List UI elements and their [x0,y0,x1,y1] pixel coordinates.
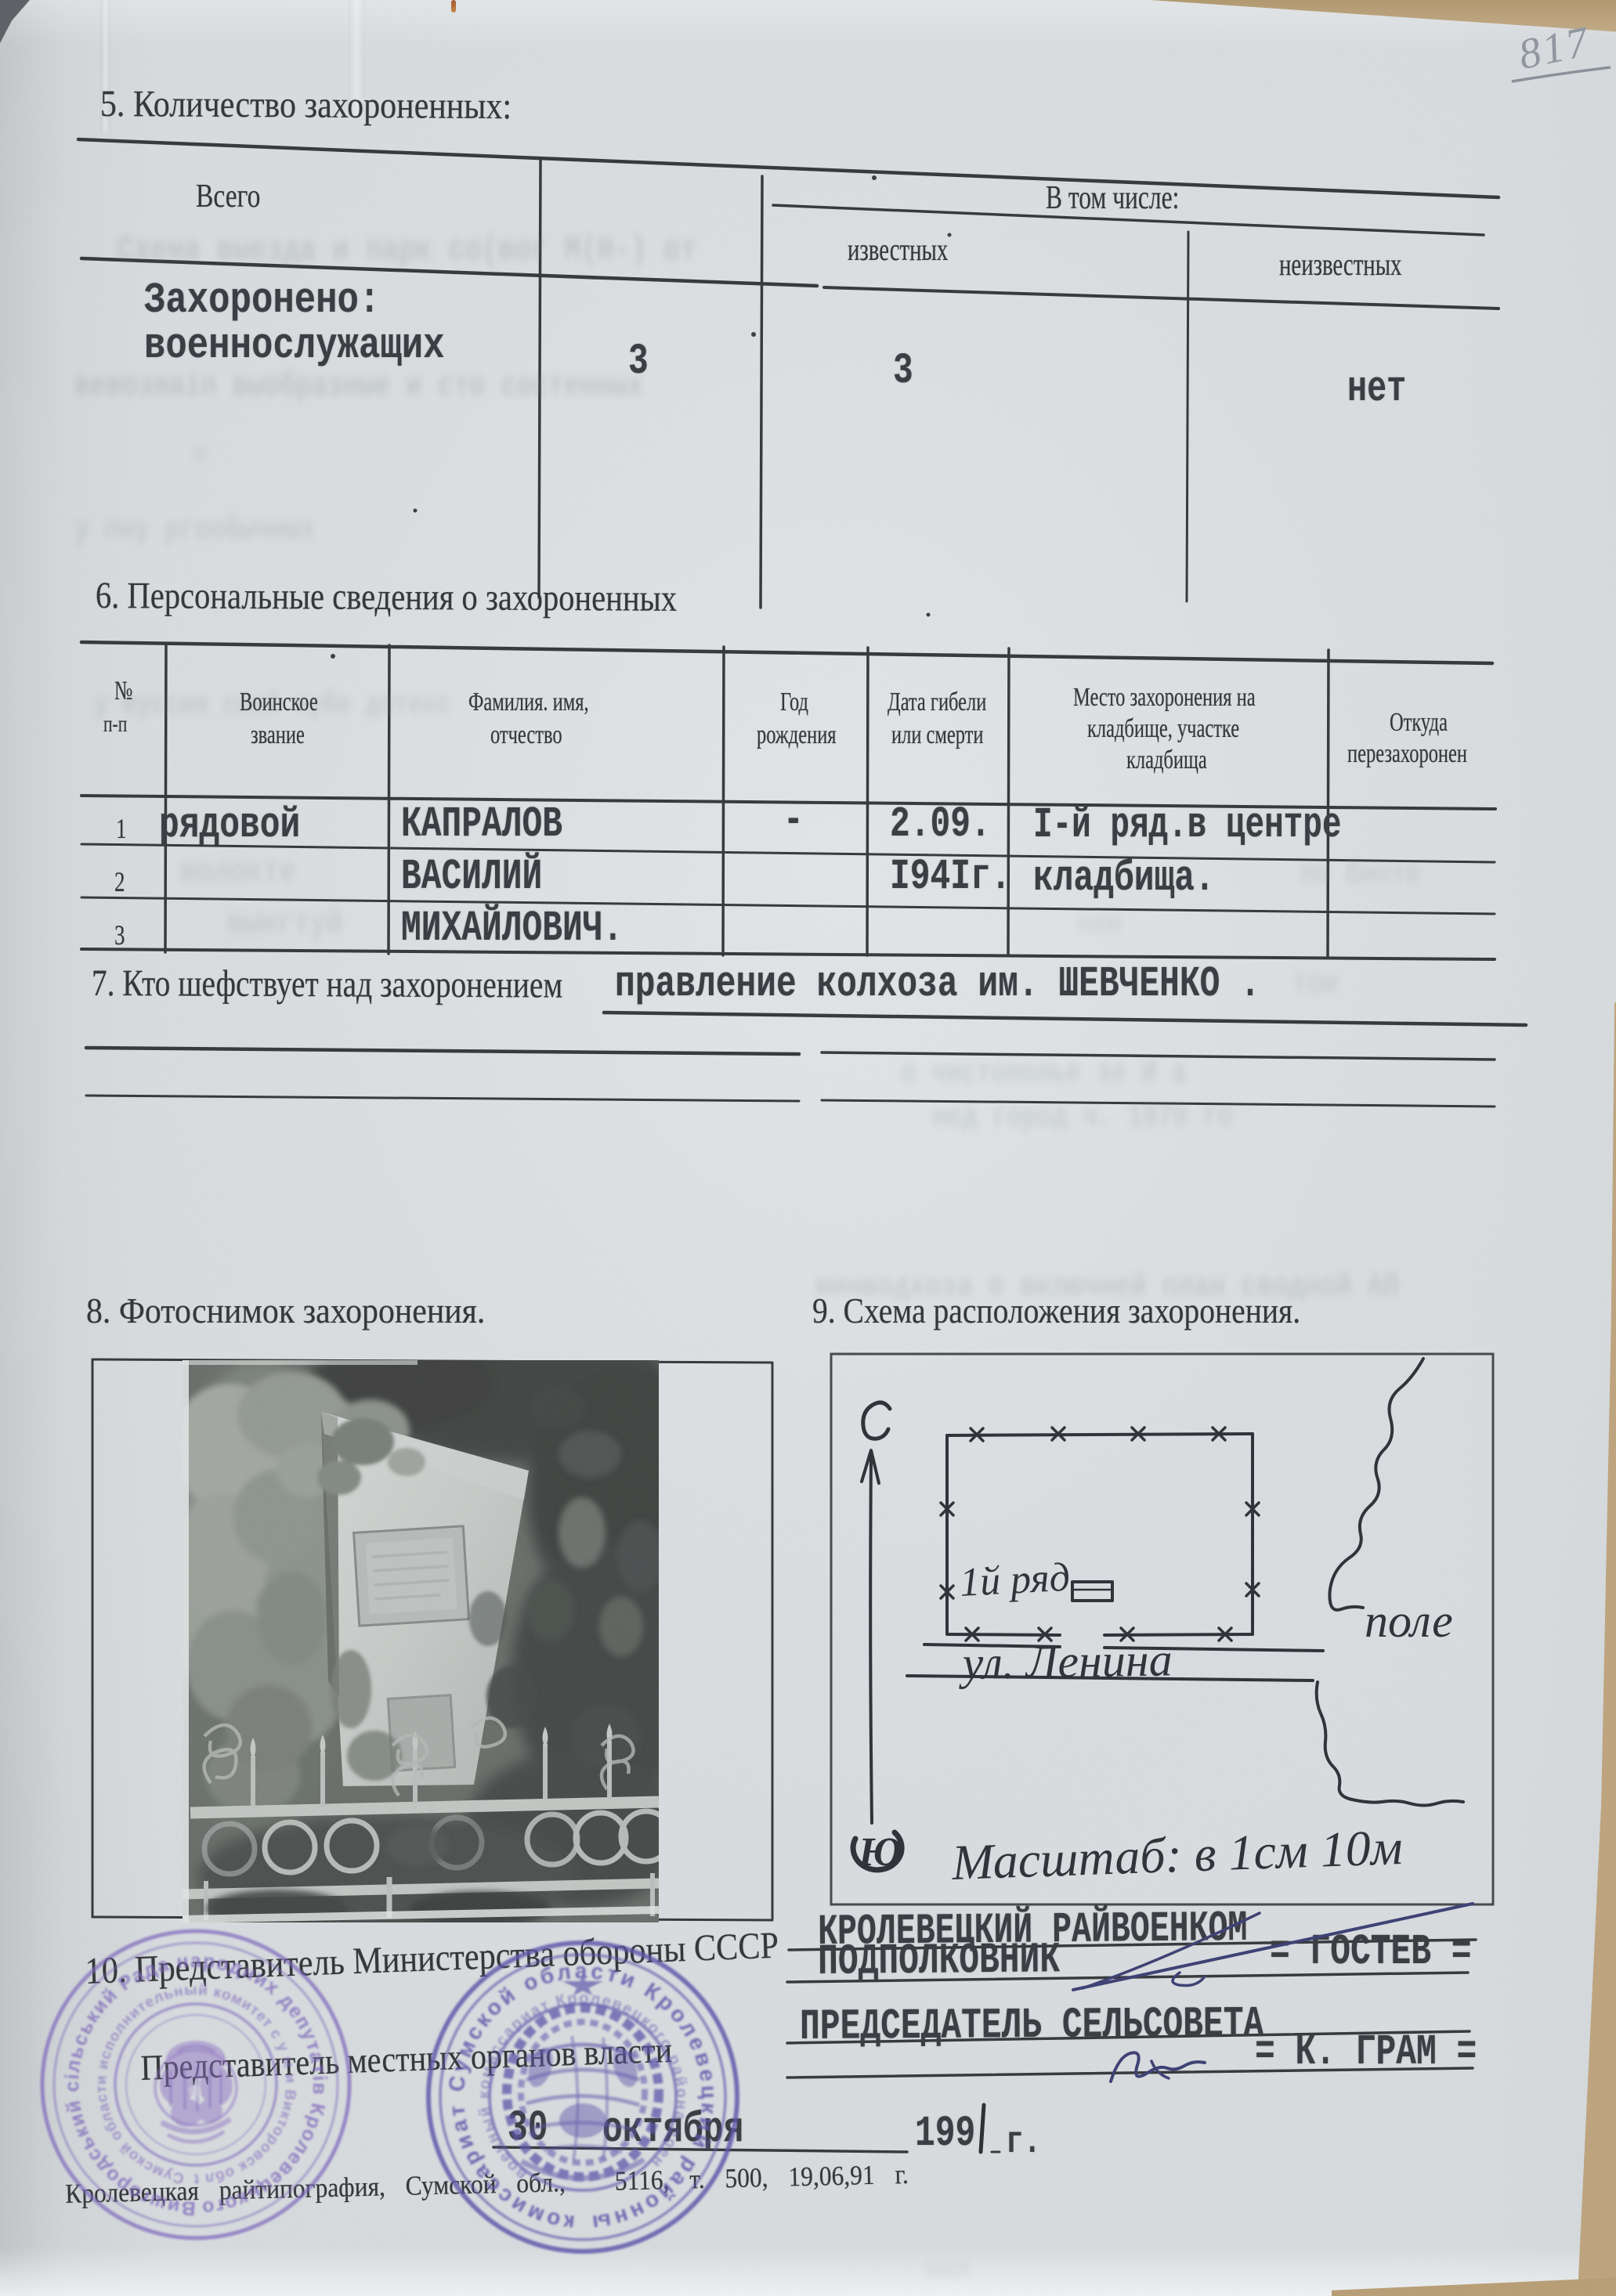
svg-text:817: 817 [1514,16,1594,78]
